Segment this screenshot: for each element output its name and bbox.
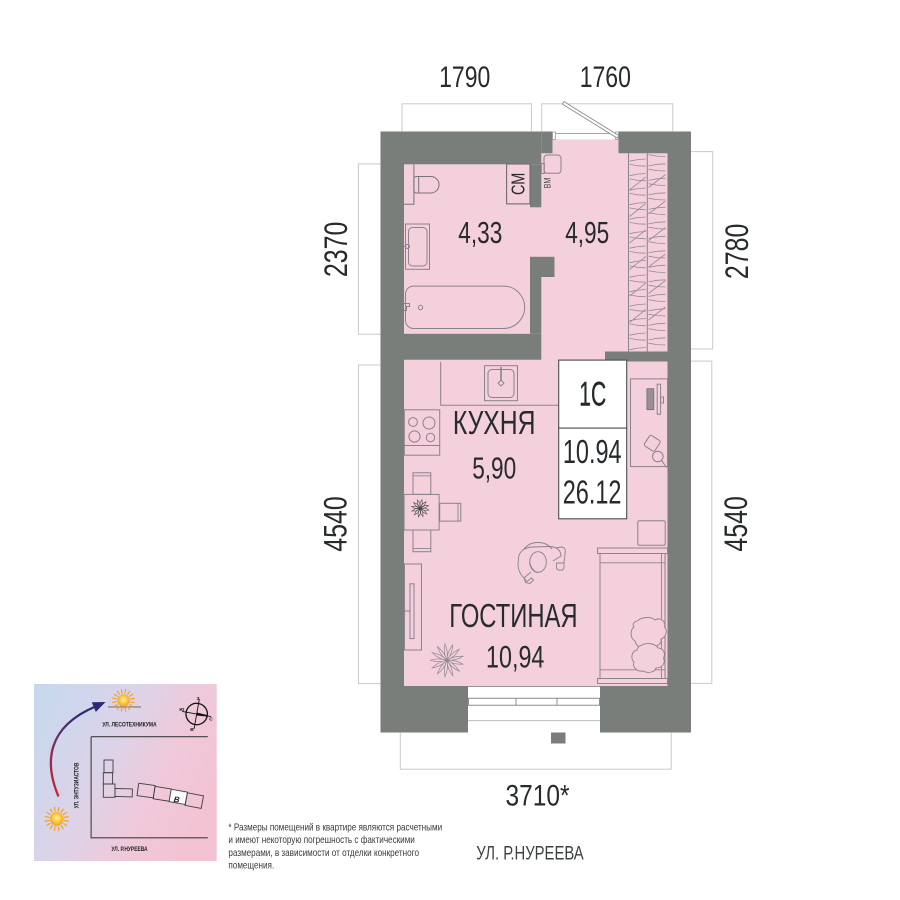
svg-text:ВМ: ВМ — [543, 177, 553, 188]
svg-text:УЛ. ЭНТУЗИАСТОВ: УЛ. ЭНТУЗИАСТОВ — [74, 763, 81, 809]
svg-text:2370: 2370 — [319, 222, 355, 278]
svg-text:В: В — [190, 727, 194, 733]
svg-text:помещения.: помещения. — [228, 860, 274, 871]
svg-text:Ю: Ю — [179, 707, 184, 713]
svg-text:ГОСТИНАЯ: ГОСТИНАЯ — [449, 598, 577, 635]
svg-text:* Размеры помещений в квартире: * Размеры помещений в квартире являются … — [228, 822, 442, 833]
svg-text:1790: 1790 — [439, 60, 490, 93]
svg-text:СМ: СМ — [508, 173, 529, 195]
svg-text:1С: 1С — [579, 374, 606, 412]
svg-text:УЛ. Р.НУРЕЕВА: УЛ. Р.НУРЕЕВА — [111, 847, 147, 854]
svg-text:5,90: 5,90 — [472, 450, 516, 485]
svg-text:размерами, в зависимости от от: размерами, в зависимости от отделки конк… — [228, 847, 419, 858]
svg-text:4540: 4540 — [319, 496, 355, 552]
svg-text:10.94: 10.94 — [563, 434, 622, 471]
svg-text:10,94: 10,94 — [486, 639, 544, 674]
svg-text:26.12: 26.12 — [563, 475, 622, 512]
svg-text:4,95: 4,95 — [565, 214, 609, 249]
svg-text:УЛ. ЛЕСОТЕХНИКУМА: УЛ. ЛЕСОТЕХНИКУМА — [102, 722, 156, 729]
svg-text:КУХНЯ: КУХНЯ — [453, 406, 536, 442]
svg-text:С: С — [209, 716, 213, 722]
svg-text:УЛ. Р.НУРЕЕВА: УЛ. Р.НУРЕЕВА — [476, 842, 584, 864]
svg-text:2780: 2780 — [720, 224, 756, 280]
svg-text:1760: 1760 — [580, 60, 631, 93]
svg-text:и имеют некоторую погрешность: и имеют некоторую погрешность с фактичес… — [228, 834, 414, 845]
svg-text:З: З — [196, 696, 199, 702]
svg-text:4,33: 4,33 — [458, 214, 502, 249]
svg-text:3710*: 3710* — [506, 778, 570, 812]
svg-text:4540: 4540 — [719, 496, 755, 552]
